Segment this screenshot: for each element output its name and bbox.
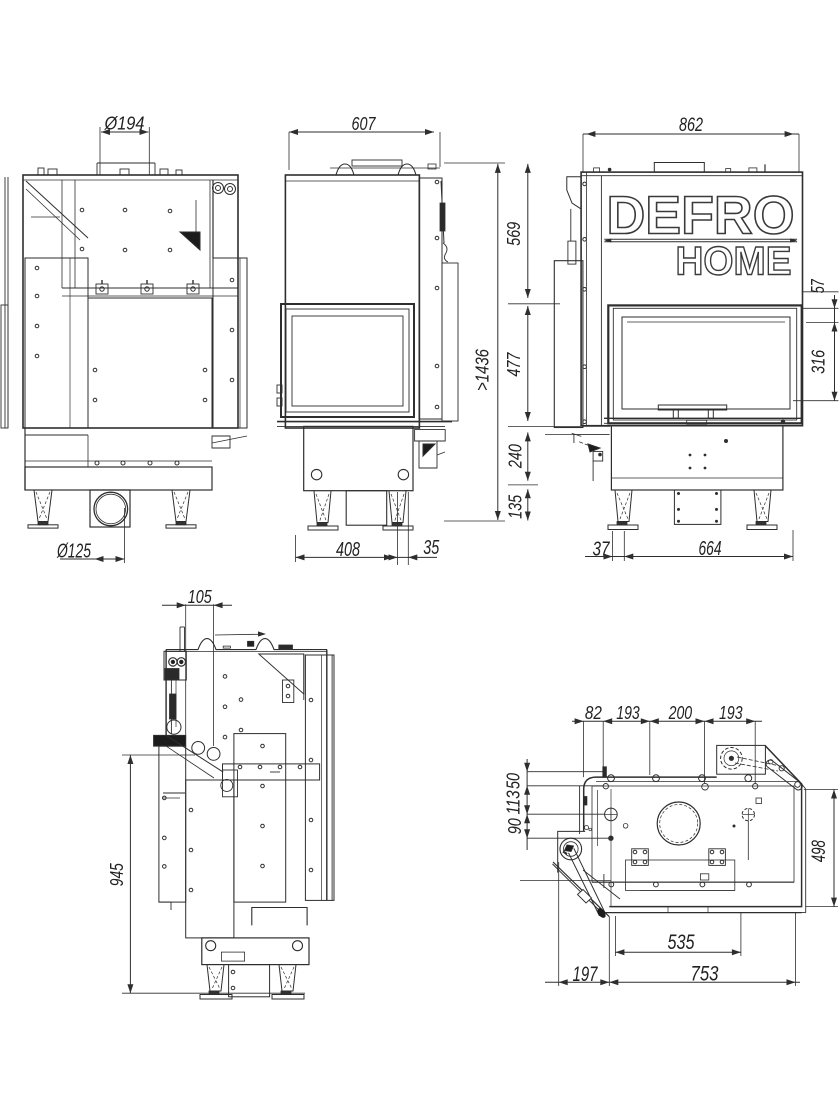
svg-text:316: 316 — [808, 349, 828, 374]
svg-text:477: 477 — [504, 352, 524, 377]
svg-text:50: 50 — [504, 773, 524, 789]
svg-text:945: 945 — [107, 862, 127, 886]
svg-text:DEFRO: DEFRO — [607, 186, 795, 246]
svg-text:240: 240 — [506, 444, 526, 469]
svg-text:113: 113 — [504, 791, 524, 815]
svg-text:607: 607 — [352, 114, 377, 134]
svg-text:57: 57 — [808, 279, 828, 294]
svg-text:569: 569 — [504, 222, 524, 246]
svg-text:193: 193 — [616, 703, 640, 723]
svg-text:105: 105 — [188, 587, 213, 607]
svg-text:135: 135 — [506, 494, 526, 519]
svg-text:535: 535 — [668, 931, 695, 954]
svg-text:HOME: HOME — [676, 240, 792, 284]
svg-text:35: 35 — [423, 537, 440, 559]
svg-text:498: 498 — [809, 840, 830, 862]
svg-text:193: 193 — [719, 703, 743, 723]
svg-text:90: 90 — [505, 818, 525, 834]
svg-text:862: 862 — [679, 115, 703, 136]
svg-text:200: 200 — [668, 703, 692, 723]
svg-text:82: 82 — [585, 703, 602, 723]
svg-text:>1436: >1436 — [473, 348, 493, 391]
